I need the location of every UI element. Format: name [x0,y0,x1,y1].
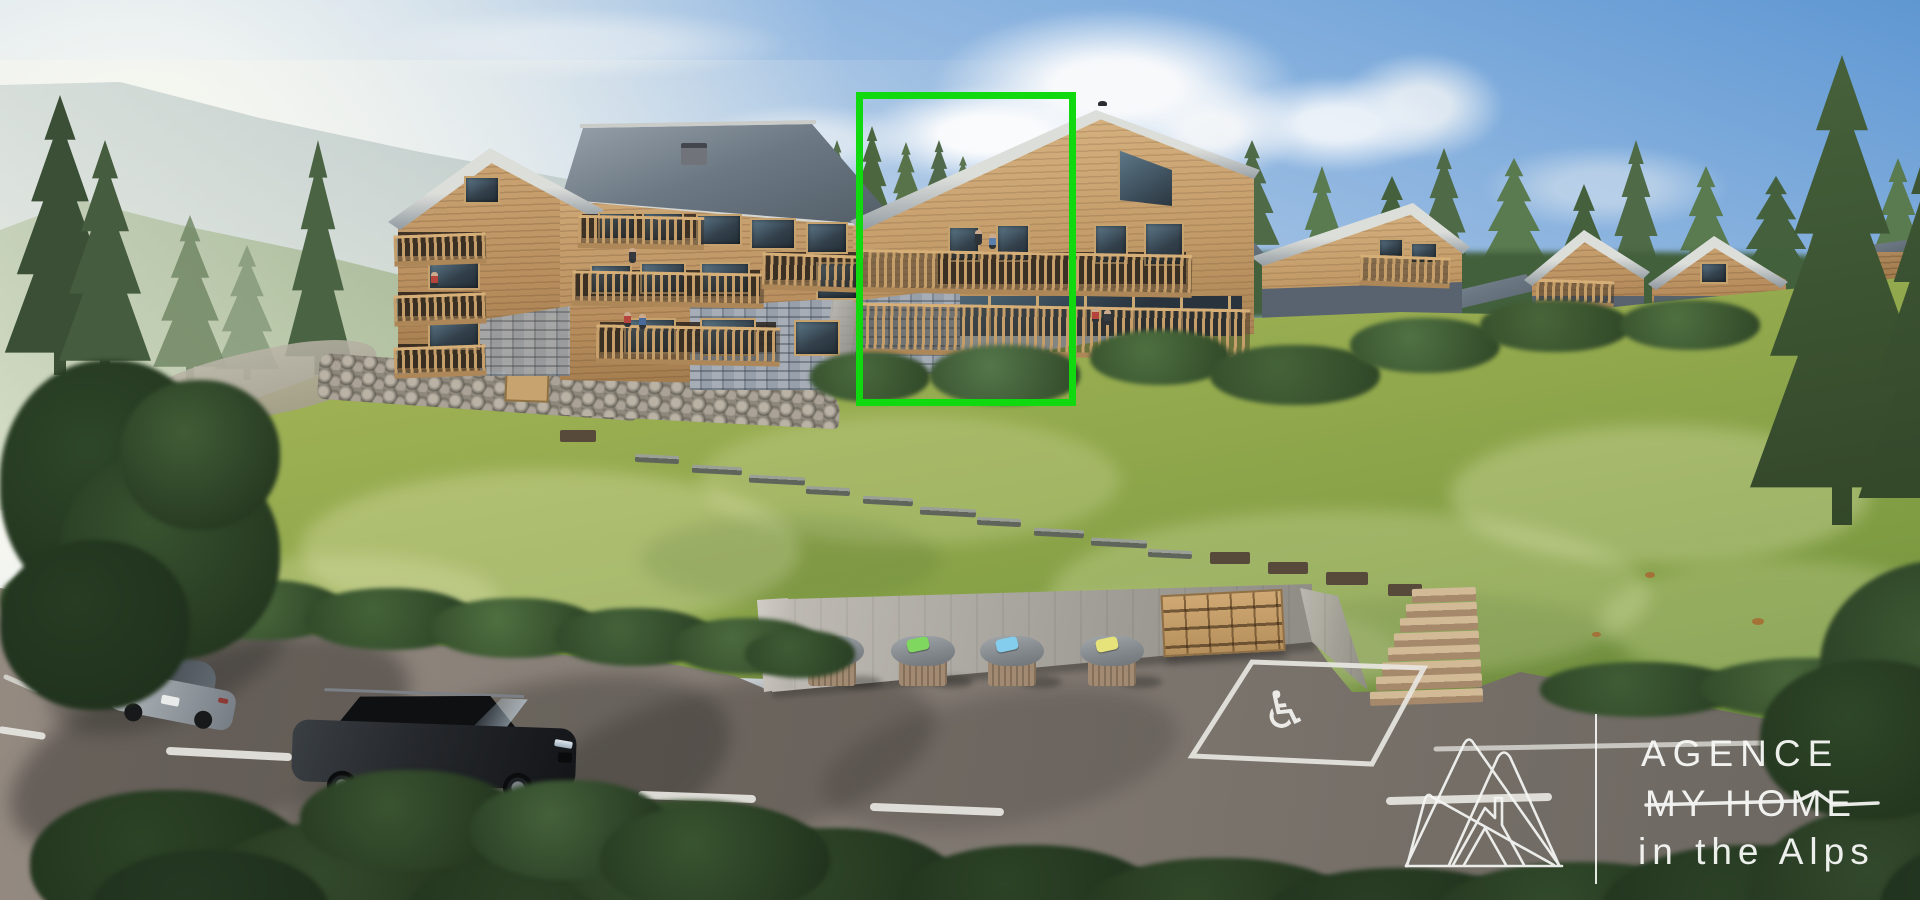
mountain-house-logo-icon [1394,728,1614,900]
foreground-bush [600,805,830,900]
logo-line-in-the-alps: in the Alps [1638,831,1875,873]
highlighted-unit-box[interactable] [856,92,1076,406]
alpine-chalet-development-render: ♿︎ [0,0,1920,900]
agency-logo: AGENCE MY HOME in the Alps [1388,700,1920,900]
logo-divider [1595,714,1597,884]
foreground-bush [0,540,190,710]
logo-strikethrough [1640,788,1890,818]
logo-line-agence: AGENCE [1641,733,1839,775]
foreground-bush [120,380,280,530]
